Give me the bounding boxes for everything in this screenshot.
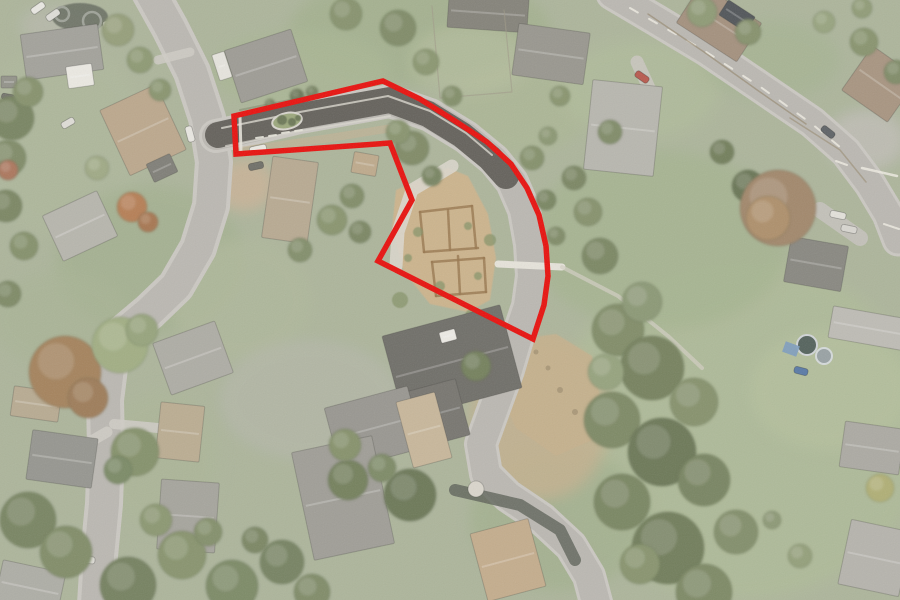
photo-grain (0, 0, 900, 600)
texture-layer (0, 0, 900, 600)
satellite-imagery (0, 0, 900, 600)
aerial-parcel-map (0, 0, 900, 600)
